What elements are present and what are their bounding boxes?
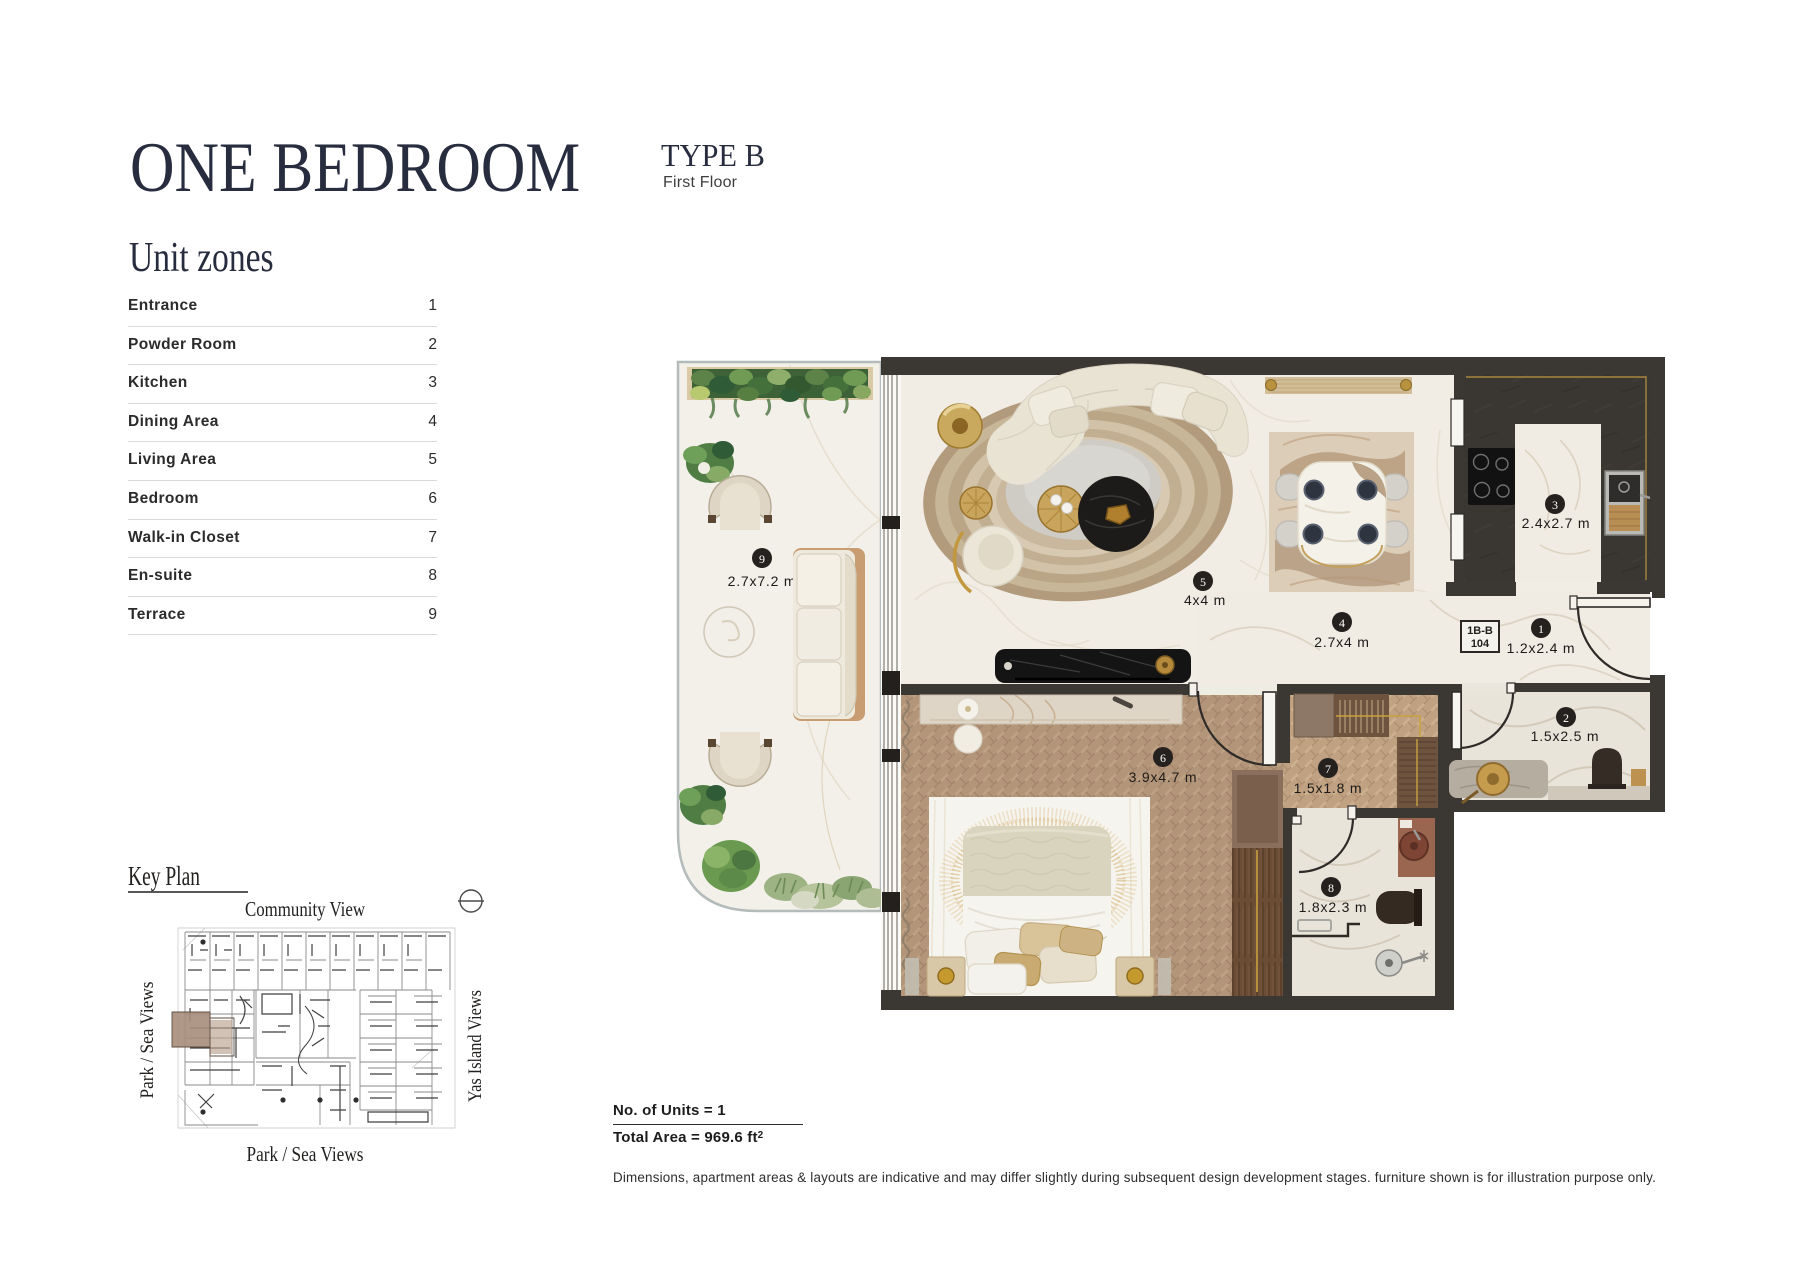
svg-text:1B-B: 1B-B	[1467, 625, 1493, 637]
svg-text:5: 5	[1200, 575, 1206, 589]
svg-text:Yas Island Views: Yas Island Views	[465, 990, 486, 1102]
svg-text:7: 7	[1325, 762, 1331, 776]
svg-text:2.7x7.2 m: 2.7x7.2 m	[728, 573, 797, 589]
svg-text:3.9x4.7 m: 3.9x4.7 m	[1129, 769, 1198, 785]
svg-text:Park / Sea Views: Park / Sea Views	[247, 1142, 364, 1166]
svg-text:2: 2	[1563, 711, 1569, 725]
svg-text:1.5x2.5 m: 1.5x2.5 m	[1531, 728, 1600, 744]
svg-text:2.4x2.7 m: 2.4x2.7 m	[1522, 515, 1591, 531]
svg-text:1: 1	[1538, 622, 1544, 636]
svg-text:3: 3	[1552, 498, 1558, 512]
svg-text:1.2x2.4 m: 1.2x2.4 m	[1507, 640, 1576, 656]
svg-text:4x4 m: 4x4 m	[1184, 592, 1226, 608]
svg-text:Community View: Community View	[245, 897, 366, 921]
svg-text:104: 104	[1471, 638, 1490, 650]
svg-text:1.8x2.3 m: 1.8x2.3 m	[1299, 899, 1368, 915]
svg-text:9: 9	[759, 552, 765, 566]
svg-text:1.5x1.8 m: 1.5x1.8 m	[1294, 780, 1363, 796]
svg-text:8: 8	[1328, 881, 1334, 895]
svg-text:Key Plan: Key Plan	[128, 861, 200, 891]
svg-text:4: 4	[1339, 616, 1345, 630]
svg-text:Park / Sea Views: Park / Sea Views	[137, 982, 158, 1099]
svg-text:2.7x4 m: 2.7x4 m	[1314, 634, 1369, 650]
svg-text:6: 6	[1160, 751, 1166, 765]
